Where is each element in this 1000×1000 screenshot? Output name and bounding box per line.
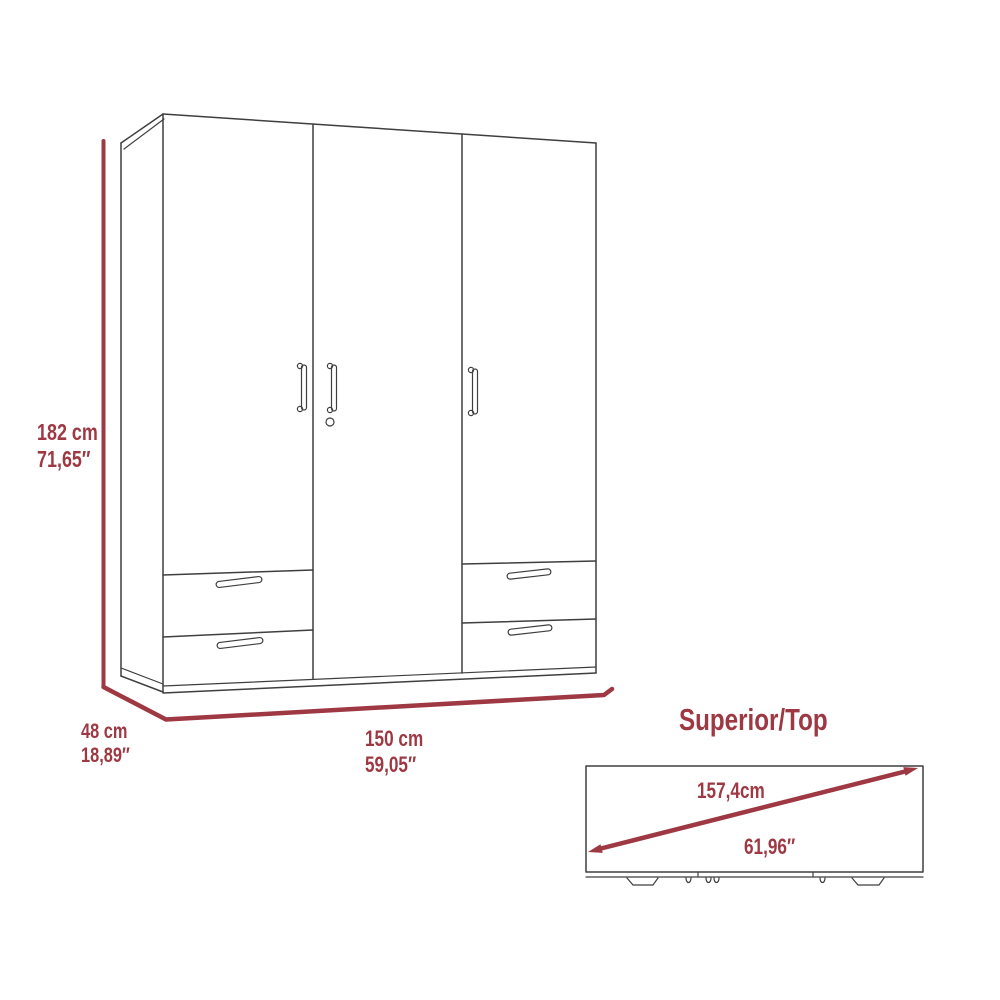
depth-inches-value: 18,89″ bbox=[81, 744, 130, 768]
middle-door-handle-icon bbox=[327, 363, 336, 412]
width-inches-value: 59,05″ bbox=[365, 752, 423, 778]
drawer-divisions bbox=[163, 561, 596, 637]
drawer-handle-icon bbox=[216, 576, 262, 588]
top-hinge-icon bbox=[686, 878, 691, 883]
diagram-artwork bbox=[0, 0, 1000, 1000]
top-hinge-icon bbox=[706, 878, 711, 883]
door-divisions bbox=[313, 124, 462, 679]
depth-cm-value: 48 cm bbox=[81, 720, 130, 744]
diagonal-cm-value: 157,4cm bbox=[697, 778, 765, 804]
wardrobe-front-view bbox=[121, 114, 596, 693]
top-hinge-icon bbox=[714, 878, 719, 883]
front-face bbox=[163, 114, 596, 693]
drawer-handle-icon bbox=[507, 569, 551, 580]
drawer-handle-icons bbox=[216, 569, 552, 649]
height-dimension-label: 182 cm 71,65″ bbox=[37, 419, 98, 473]
top-handle-icon bbox=[852, 878, 884, 885]
dimension-diagram: 182 cm 71,65″ 48 cm 18,89″ 150 cm 59,05″… bbox=[0, 0, 1000, 1000]
top-view-handle-icons bbox=[627, 878, 884, 885]
top-hinge-icon bbox=[820, 878, 825, 883]
side-panel bbox=[121, 114, 164, 692]
depth-dimension-label: 48 cm 18,89″ bbox=[81, 720, 130, 768]
top-handle-icon bbox=[627, 878, 658, 885]
width-cm-value: 150 cm bbox=[365, 726, 423, 752]
drawer-handle-icon bbox=[217, 637, 263, 649]
top-view-title: Superior/Top bbox=[679, 701, 828, 738]
keyhole-icon bbox=[326, 418, 334, 426]
diagonal-inches-value: 61,96″ bbox=[744, 834, 795, 860]
right-door-handle-icon bbox=[468, 367, 477, 415]
height-inches-value: 71,65″ bbox=[37, 446, 98, 473]
height-cm-value: 182 cm bbox=[37, 419, 98, 446]
width-dimension-label: 150 cm 59,05″ bbox=[365, 726, 423, 778]
drawer-handle-icon bbox=[508, 625, 552, 636]
left-door-handle-icon bbox=[297, 363, 306, 411]
